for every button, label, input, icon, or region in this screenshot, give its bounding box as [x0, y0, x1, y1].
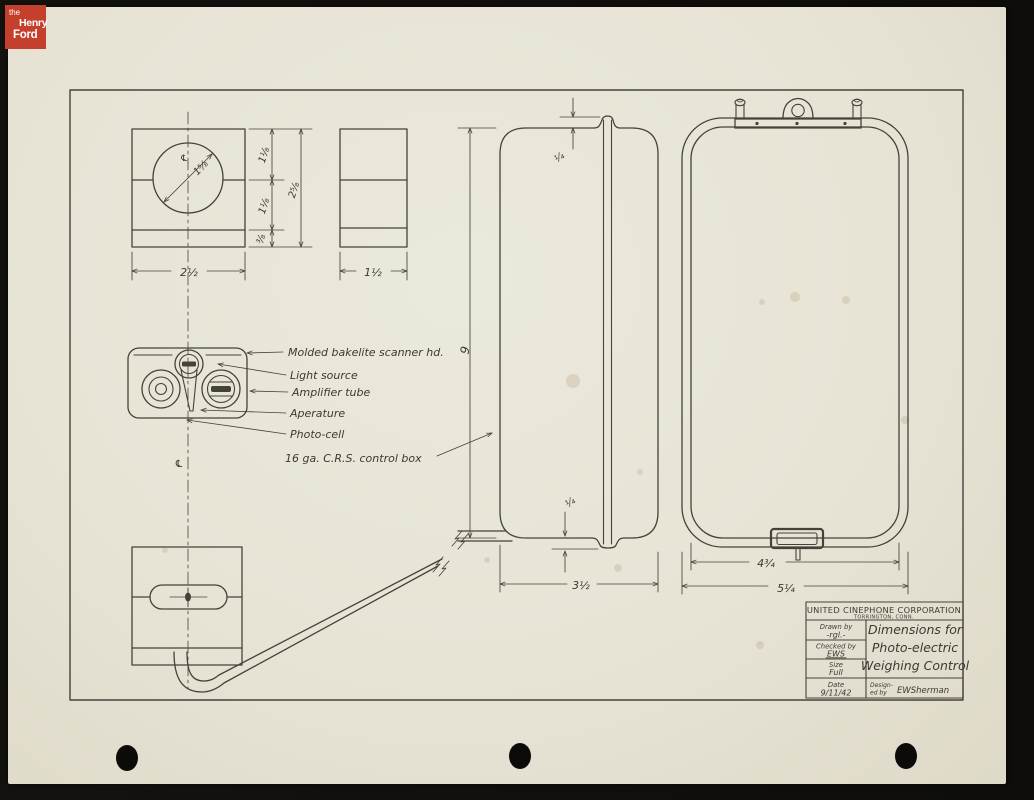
scanner-front-view: ℄ 1⅝ 1⅛ 1⅛ ⅜ 2⅝ 2½ — [132, 129, 312, 280]
date-value: 9/11/42 — [821, 689, 852, 698]
label-aperture: Aperature — [289, 407, 345, 420]
scanner-bottom-view — [132, 547, 242, 665]
photo-cell-element — [142, 370, 180, 408]
title-block: UNITED CINEPHONE CORPORATION TORRINGTON,… — [806, 602, 970, 698]
punch-holes — [116, 743, 917, 771]
company-location: TORRINGTON, CONN. — [853, 615, 914, 621]
label-scanner-head: Molded bakelite scanner hd. — [288, 346, 444, 359]
callout-labels: Molded bakelite scanner hd. Light source… — [187, 346, 492, 465]
blueprint-linework: ℄ 1⅝ 1⅛ 1⅛ ⅜ 2⅝ 2½ — [0, 0, 1034, 800]
dim-box-depth: 3½ — [572, 579, 590, 592]
control-box-side-view: 9 ¼ ¼ 3½ — [457, 98, 658, 592]
label-amplifier-tube: Amplifier tube — [291, 386, 370, 399]
dim-lower-segment: ⅜ — [255, 233, 269, 246]
dim-upper-segment: 1⅛ — [257, 146, 273, 165]
drawing-title-line1: Dimensions for — [868, 622, 963, 637]
dim-box-inner-width: 4¾ — [757, 557, 775, 570]
company-name: UNITED CINEPHONE CORPORATION — [807, 605, 961, 615]
dim-middle-segment: 1⅛ — [257, 197, 273, 216]
logo-ford: Ford — [13, 30, 46, 42]
henry-ford-logo: the Henry Ford — [5, 5, 46, 49]
paper-stains — [162, 292, 909, 649]
logo-the: the — [9, 9, 46, 17]
label-light-source: Light source — [290, 369, 358, 382]
hanger-loop — [783, 99, 813, 120]
scanner-side-view: 1½ — [340, 129, 407, 280]
designed-by-label-2: ed by — [870, 690, 887, 697]
dim-scanner-width: 2½ — [180, 266, 198, 279]
dim-box-outer-width: 5¼ — [777, 582, 795, 595]
dim-scanner-height: 2⅝ — [287, 181, 303, 200]
dim-box-height: 9 — [457, 345, 472, 355]
aperture-funnel — [181, 370, 190, 411]
designed-by-label-1: Design- — [870, 682, 893, 689]
label-photo-cell: Photo-cell — [290, 428, 344, 441]
dim-scanner-depth: 1½ — [364, 266, 382, 279]
checked-by-value: EWS — [827, 650, 845, 659]
size-value: Full — [829, 668, 844, 677]
centerline-symbol: ℄ — [180, 154, 188, 164]
conduit-cable — [174, 531, 512, 692]
scanner-internals-view: ℄ — [128, 348, 247, 470]
scanned-sheet-stage: ℄ 1⅝ 1⅛ 1⅛ ⅜ 2⅝ 2½ — [0, 0, 1034, 800]
dim-flange-bottom: ¼ — [563, 495, 578, 511]
bottom-latch — [771, 529, 823, 560]
drawn-by-value: -rgl.- — [827, 631, 846, 640]
control-box-front-view: 4¾ 5¼ — [682, 99, 908, 596]
centerline-symbol: ℄ — [175, 459, 184, 470]
dim-flange-top: ¼ — [552, 150, 567, 166]
drawing-title-line3: Weighing Control — [861, 658, 970, 673]
label-control-box: 16 ga. C.R.S. control box — [285, 452, 422, 465]
mounting-bracket — [735, 99, 862, 128]
dim-hole-diameter: 1⅝ — [192, 158, 211, 177]
drawing-title-line2: Photo-electric — [872, 640, 958, 655]
logo-henry: Henry — [19, 18, 46, 29]
designed-by-value: EWSherman — [897, 686, 949, 696]
